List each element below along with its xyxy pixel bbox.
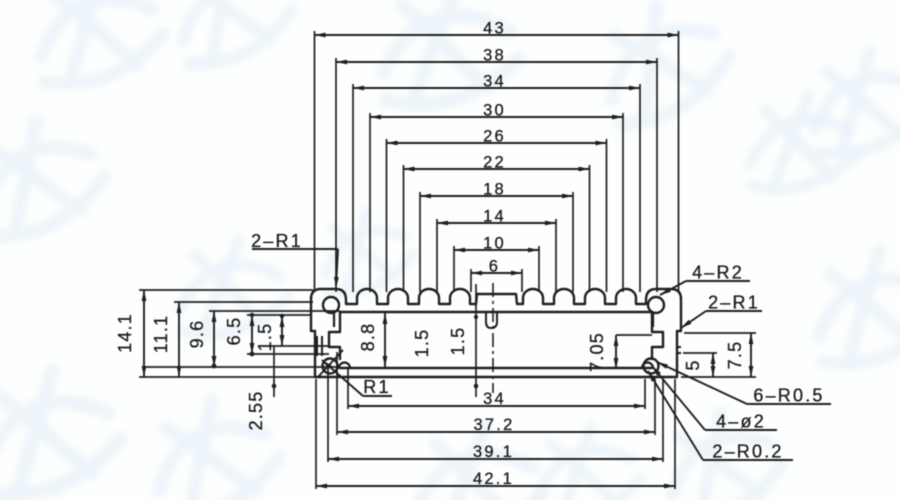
svg-text:34: 34	[483, 390, 506, 408]
svg-text:38: 38	[483, 47, 506, 65]
svg-text:39.1: 39.1	[473, 443, 514, 461]
svg-text:10: 10	[483, 235, 506, 253]
svg-text:43: 43	[483, 20, 506, 38]
svg-text:2–R1: 2–R1	[251, 231, 303, 251]
svg-text:6–R0.5: 6–R0.5	[753, 386, 824, 406]
svg-text:8.8: 8.8	[358, 323, 378, 352]
svg-text:4–ø2: 4–ø2	[716, 412, 766, 432]
svg-text:34: 34	[483, 73, 506, 91]
svg-text:2–R1: 2–R1	[708, 293, 760, 313]
svg-text:2–R0.2: 2–R0.2	[712, 442, 783, 462]
svg-text:4–R2: 4–R2	[692, 263, 744, 283]
svg-text:30: 30	[483, 102, 506, 120]
svg-text:6: 6	[489, 258, 500, 276]
svg-text:1.5: 1.5	[255, 323, 275, 352]
svg-text:R1: R1	[363, 377, 390, 397]
svg-text:9.6: 9.6	[187, 320, 207, 349]
svg-text:6.5: 6.5	[224, 317, 244, 346]
svg-text:22: 22	[483, 154, 506, 172]
svg-text:1.5: 1.5	[448, 327, 468, 356]
svg-text:14: 14	[483, 208, 506, 226]
svg-text:18: 18	[483, 181, 506, 199]
svg-text:7.5: 7.5	[725, 341, 745, 370]
svg-text:7.05: 7.05	[587, 332, 607, 372]
svg-text:2.55: 2.55	[246, 391, 266, 431]
svg-text:42.1: 42.1	[473, 470, 514, 488]
svg-text:26: 26	[483, 128, 506, 146]
svg-text:5: 5	[683, 359, 703, 370]
svg-text:37.2: 37.2	[474, 416, 515, 434]
svg-text:1.5: 1.5	[412, 329, 432, 358]
svg-text:14.1: 14.1	[115, 313, 135, 353]
svg-text:11.1: 11.1	[151, 315, 171, 354]
